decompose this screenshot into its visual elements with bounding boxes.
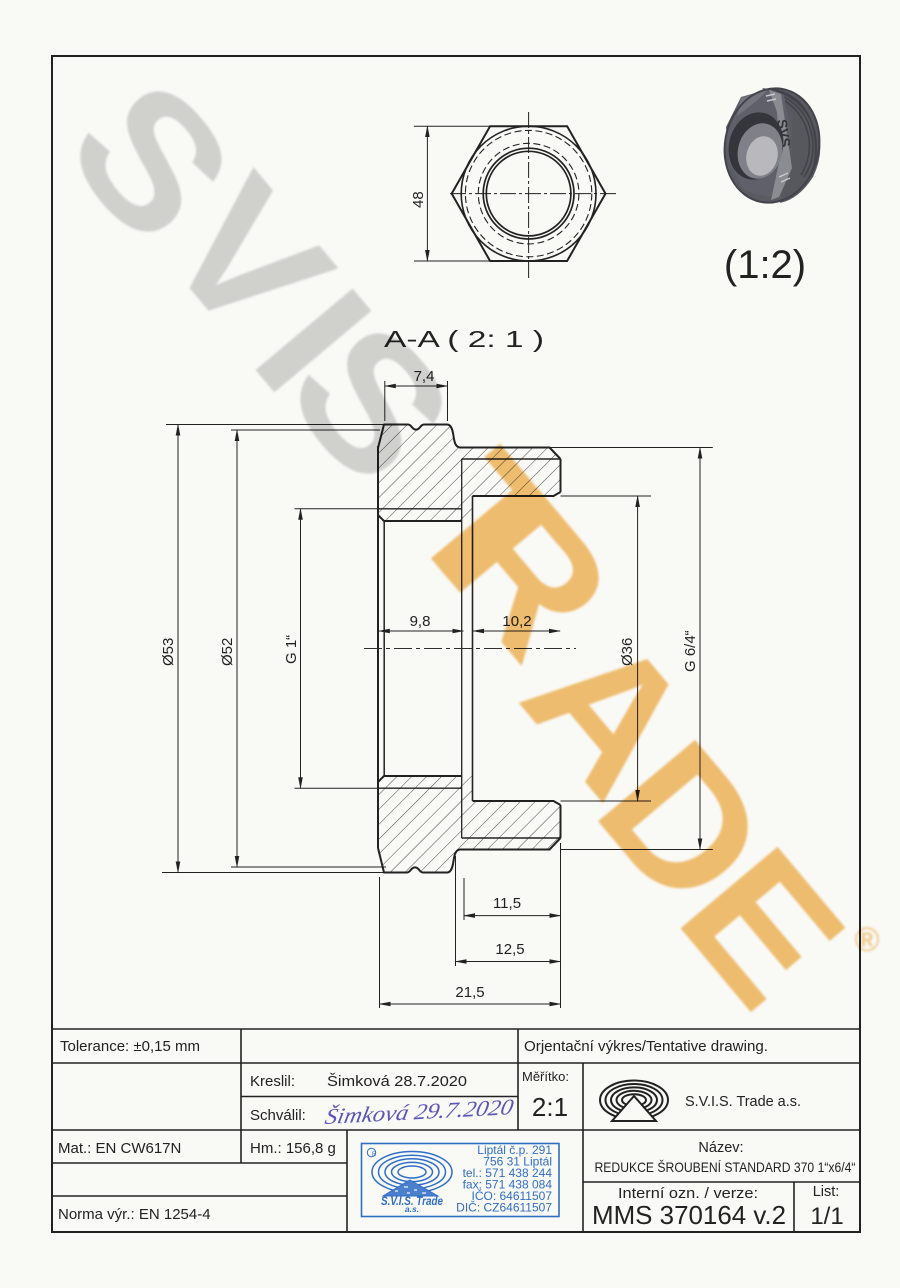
svg-text:G 1“: G 1“ [283,635,300,664]
svg-text:Šimková 28.7.2020: Šimková 28.7.2020 [327,1073,467,1090]
svg-text:a.s.: a.s. [405,1204,419,1214]
svg-text:7,4: 7,4 [414,368,435,385]
svg-text:9,8: 9,8 [410,613,431,630]
svg-text:1/1: 1/1 [810,1203,843,1230]
svg-text:Kreslil:: Kreslil: [250,1073,295,1090]
svg-text:DIČ: CZ64611507: DIČ: CZ64611507 [456,1200,552,1215]
svg-text:(1:2): (1:2) [724,243,806,287]
svg-text:Šimková 29.7.2020: Šimková 29.7.2020 [323,1093,516,1129]
svg-text:Hm.: 156,8 g: Hm.: 156,8 g [250,1140,336,1157]
svg-text:Mat.: EN CW617N: Mat.: EN CW617N [58,1140,181,1157]
svg-text:R: R [372,1152,377,1158]
svg-text:48: 48 [410,191,427,208]
svg-text:Schválil:: Schválil: [250,1107,306,1124]
svg-text:Ø53: Ø53 [160,638,177,666]
svg-text:Norma výr.: EN 1254-4: Norma výr.: EN 1254-4 [58,1206,211,1223]
svg-text:Ø36: Ø36 [619,638,636,666]
svg-text:G 6/4“: G 6/4“ [682,630,699,672]
svg-text:Název:: Název: [698,1140,743,1156]
svg-text:List:: List: [813,1184,840,1200]
svg-text:Tolerance: ±0,15 mm: Tolerance: ±0,15 mm [60,1038,200,1055]
svg-text:REDUKCE ŠROUBENÍ STANDARD 370: REDUKCE ŠROUBENÍ STANDARD 370 1“x6/4“ [595,1159,856,1175]
svg-text:Měřítko:: Měřítko: [522,1069,569,1084]
svg-text:S.V.I.S. Trade a.s.: S.V.I.S. Trade a.s. [685,1093,801,1110]
svg-text:Orjentační výkres/Tentative dr: Orjentační výkres/Tentative drawing. [524,1039,768,1055]
svg-text:A-A ( 2: 1 ): A-A ( 2: 1 ) [384,326,544,352]
svg-text:10,2: 10,2 [502,613,531,630]
svg-text:12,5: 12,5 [495,941,524,958]
svg-text:21,5: 21,5 [455,984,484,1001]
svg-text:Ø52: Ø52 [219,638,236,666]
svg-text:2:1: 2:1 [532,1092,568,1122]
svg-text:MMS 370164 v.2: MMS 370164 v.2 [592,1200,786,1230]
svg-text:11,5: 11,5 [493,895,521,912]
